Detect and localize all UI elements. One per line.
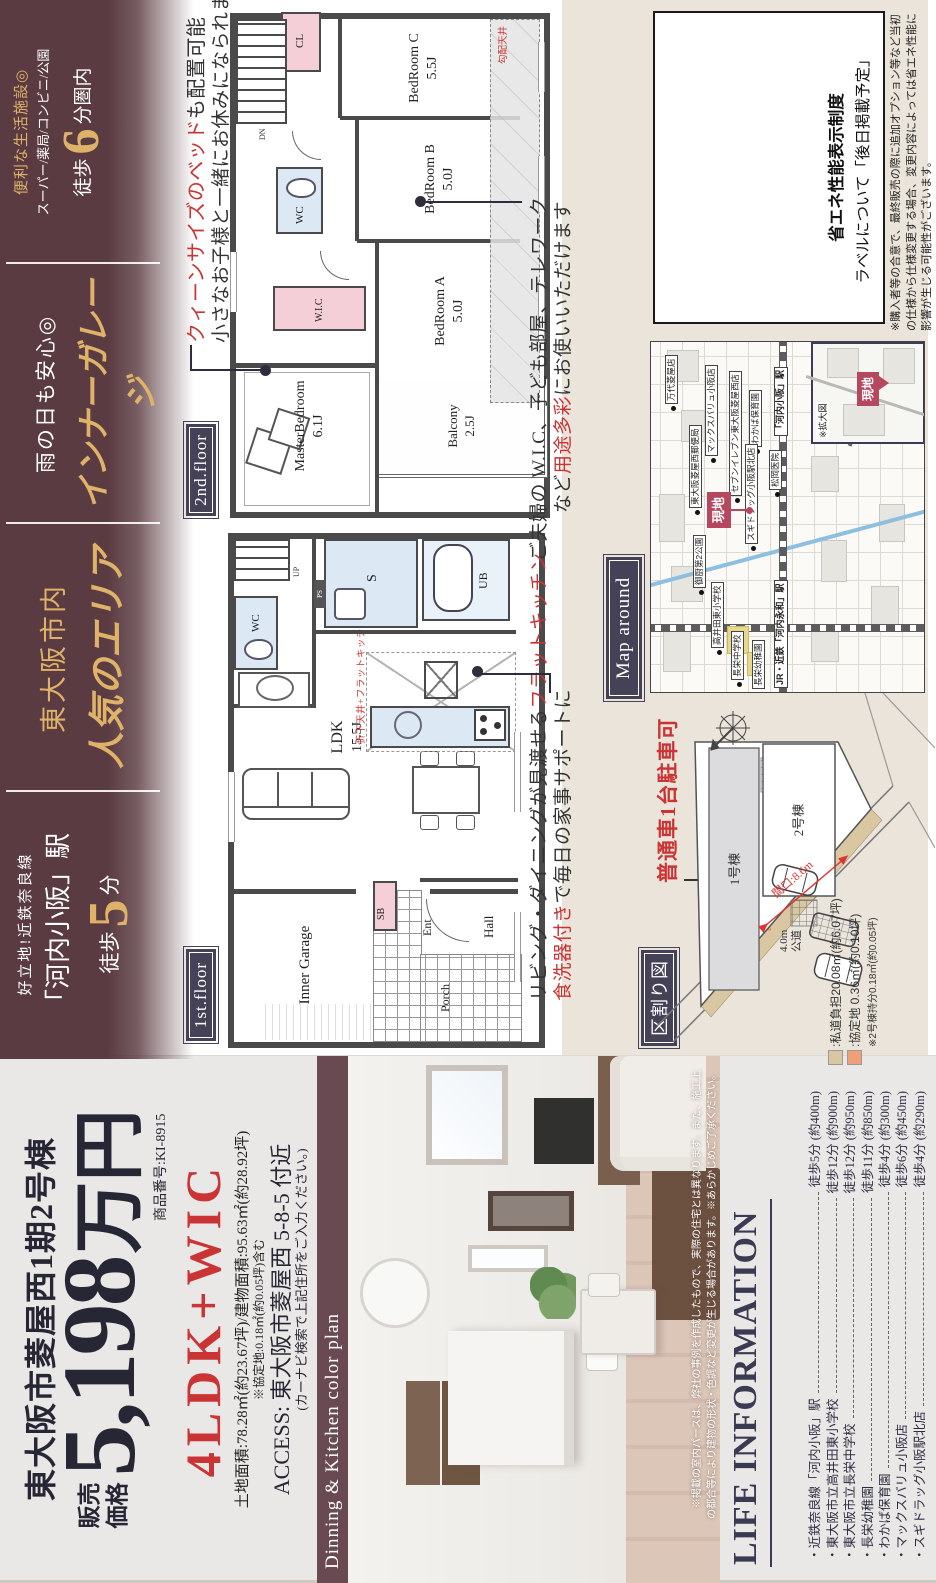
map-inset: ※拡大図 現地 xyxy=(811,342,925,444)
poi-label: わかば保育園 xyxy=(750,393,760,444)
wic-annotation-line1: ご夫婦の W.I.C、子ども部屋、テレワーク xyxy=(524,201,551,561)
master-size: 6.1J xyxy=(310,376,328,476)
stairs-down xyxy=(236,19,287,124)
legend-swatch-orange xyxy=(847,1050,862,1065)
bed-leader-dot xyxy=(260,365,271,376)
poi-label: セブンイレブン東大阪菱屋西店 xyxy=(730,374,740,493)
interior-photo: ※掲載の室内パースは、弊社の事例を作成したもので、実際の住宅とは異なります。また… xyxy=(348,1056,720,1583)
wic-leader-dot xyxy=(415,196,426,207)
queen-bed-red: クィーンサイズのベッド xyxy=(186,119,208,343)
bedB-size: 5.0J xyxy=(440,124,458,234)
station-walk-unit: 分 xyxy=(98,875,122,896)
life-item: ・近鉄奈良線「河内小阪」駅徒歩5分 (約400m) xyxy=(806,1091,823,1561)
entry-label: Ent xyxy=(420,919,436,936)
life-item: ・マックスバリュ小阪店徒歩6分 (約450m) xyxy=(893,1091,910,1561)
wic-ann-red: 用途多彩 xyxy=(553,396,574,474)
second-floor-label: 2nd.floor xyxy=(186,424,216,516)
building-1-label: 1号棟 xyxy=(727,853,742,886)
stairs-up-label: UP xyxy=(292,567,301,577)
band-section-garage: 雨の日も安心◎ インナーガレージ xyxy=(0,264,163,524)
photo-disclaimer-1: ※掲載の室内パースは、弊社の事例を作成したもので、実際の住宅とは異なります。また… xyxy=(688,1070,703,1508)
land-building-area: 土地面積:78.28㎡(約23.67坪)/建物面積:95.63㎡(約28.92坪… xyxy=(231,1056,252,1583)
flyer-viewport: 好立地!近鉄奈良線 「河内小阪」駅 徒歩 5 分 東大阪市内 人気のエリア 雨の… xyxy=(0,0,936,1583)
closet: CL xyxy=(281,12,321,72)
dishwasher-red: 食洗器付き xyxy=(553,903,574,1001)
ceiling-light xyxy=(360,1258,430,1328)
bed-annotation-line1: クィーンサイズのベッドも配置可能 xyxy=(180,17,209,343)
life-item: ・わかば保育園徒歩4分 (約300m) xyxy=(876,1091,893,1561)
site-marker: 現地 xyxy=(707,492,731,528)
bedroom-c-label: BedRoom C 5.5J xyxy=(406,20,442,116)
band-section-facility: 便利な生活施設◎ スーパー/薬局/コンビニ/公園 徒歩 6 分圏内 xyxy=(0,0,111,264)
kitchen-annotation-tail: で毎日の家事サポートに xyxy=(553,689,574,904)
life-item-name: ・わかば保育園 xyxy=(874,1473,893,1561)
leader-dashes xyxy=(836,1198,837,1393)
bedroom-a-label: BedRoom A 5.0J xyxy=(432,256,468,366)
wc-label: WC xyxy=(249,614,263,632)
life-item-time: 徒歩4分 (約290m) xyxy=(909,1091,928,1187)
bed-leader-line xyxy=(190,369,264,371)
bathroom: UB xyxy=(422,539,510,621)
life-item-name: ・東大阪市立高井田東小学校 xyxy=(822,1398,841,1561)
kitchen-leader-dot xyxy=(472,666,483,677)
inset-label: ※拡大図 xyxy=(816,402,829,439)
chair-symbol xyxy=(456,751,475,766)
bed-annotation-black: も配置可能 xyxy=(186,17,208,120)
catch-copy-band: 好立地!近鉄奈良線 「河内小阪」駅 徒歩 5 分 東大阪市内 人気のエリア 雨の… xyxy=(0,0,198,1059)
life-item-name: ・スギドラッグ小阪駅北店 xyxy=(909,1411,928,1561)
chair-symbol xyxy=(456,815,475,830)
facility-line1: 便利な生活施設◎ xyxy=(10,0,31,264)
life-item: ・長栄幼稚園徒歩11分 (約850m) xyxy=(858,1091,875,1561)
leader-dashes xyxy=(905,1192,906,1419)
legend-agreement-text: :協定地 0.36㎡(約0.10坪) xyxy=(846,914,863,1047)
kitchen-upper-cabinet xyxy=(406,1381,440,1485)
storage-room: S xyxy=(324,539,418,628)
second-floor-label-text: 2nd.floor xyxy=(191,434,211,506)
storage-label: S xyxy=(364,574,382,582)
band-section-area: 東大阪市内 人気のエリア xyxy=(0,524,131,792)
inset-site-marker-text: 現地 xyxy=(861,377,875,401)
tv-screen xyxy=(534,1098,594,1164)
closet-label: CL xyxy=(293,34,307,48)
balcony-size: 2.5J xyxy=(462,388,479,464)
ps-label: PS xyxy=(316,590,324,598)
kitchen-leader-line xyxy=(549,673,551,693)
legend-note: ※2号棟持分0.18㎡(約0.05坪) xyxy=(864,835,879,1065)
area-line1: 東大阪市内 xyxy=(32,524,71,792)
energy-note: ※購入者等の合意で、最終販売の際に追加オプション等など当初の仕様から仕様変更する… xyxy=(889,5,936,331)
master-bedroom-label: MasterBedroom 6.1J xyxy=(292,376,328,476)
life-item: ・スギドラッグ小阪駅北店徒歩4分 (約290m) xyxy=(910,1091,927,1561)
second-floor-plan: MasterBedroom 6.1J Balcony 2.5J W.I.C WC… xyxy=(230,13,550,518)
station-catch: 好立地!近鉄奈良線 xyxy=(14,795,35,1053)
price-label-1: 販売 xyxy=(76,1483,104,1529)
poi-label: 長栄幼稚園 xyxy=(753,643,763,686)
wic-ann-post: にお使いいただけます xyxy=(553,201,574,396)
price-label-2: 価格 xyxy=(104,1483,132,1529)
skylight xyxy=(426,1065,508,1165)
wc-room: WC xyxy=(234,596,278,670)
garage-line1: 雨の日も安心◎ xyxy=(30,264,60,524)
life-item: ・東大阪市立長栄中学校徒歩12分 (約950m) xyxy=(841,1091,858,1561)
facility-walk-unit: 分圏内 xyxy=(73,67,94,124)
framed-picture xyxy=(488,1191,574,1231)
ldk-name: LDK xyxy=(328,700,349,774)
station-walk-minutes: 5 xyxy=(78,900,140,928)
door-arc xyxy=(320,251,349,280)
kitchen-island xyxy=(448,1331,574,1465)
life-item-name: ・近鉄奈良線「河内小阪」駅 xyxy=(804,1398,823,1561)
kitchen-note: 折下天井+フラットキッチン xyxy=(353,618,367,744)
site-marker-dot xyxy=(746,507,753,514)
station-name: 「河内小阪」駅 xyxy=(38,795,75,1053)
ps-box: PS xyxy=(314,580,326,608)
life-item-time: 徒歩5分 (約400m) xyxy=(804,1091,823,1187)
life-information-header: LIFE INFORMATION xyxy=(727,1199,772,1567)
station-kosaka-text: 「河内小阪」駅 xyxy=(775,370,785,433)
map-around-text: Map around xyxy=(613,577,635,679)
walk-in-closet: W.I.C xyxy=(273,286,366,331)
station-walk-label: 徒歩 xyxy=(98,932,122,974)
road-type-label: 公道 xyxy=(789,930,803,952)
flyer-page: 好立地!近鉄奈良線 「河内小阪」駅 徒歩 5 分 東大阪市内 人気のエリア 雨の… xyxy=(0,0,936,1583)
building-2-label: 2号棟 xyxy=(791,804,806,837)
wc-2f-label: WC xyxy=(293,206,307,224)
life-item: ・東大阪市立高井田東小学校徒歩12分 (約900m) xyxy=(823,1091,840,1561)
master-name: MasterBedroom xyxy=(292,376,310,476)
wc-room-2f: WC xyxy=(276,167,323,234)
floor-plan-type: 4LDK+WIC xyxy=(174,1056,232,1583)
porch-tiles xyxy=(420,954,522,1042)
bed-annotation-line2: 小さなお子様と一緒にお休みになられます xyxy=(206,0,233,343)
leader-dashes xyxy=(871,1198,872,1481)
door-arc xyxy=(292,131,321,160)
photo-disclaimer-2: の都合等により建物の形状・色調など変更が生じる場合があります。※あらかじめご了承… xyxy=(703,1070,718,1519)
stairs-down-label: DN xyxy=(258,128,267,140)
station-label-kosaka: 「河内小阪」駅 xyxy=(774,367,788,436)
wic-annotation-line2: など用途多彩にお使いいただけます xyxy=(548,201,575,561)
area-line2: 人気のエリア xyxy=(77,524,131,792)
kitchen-leader-line xyxy=(481,673,551,675)
photo-banner: Dinning & Kitchen color plan xyxy=(317,1056,348,1583)
site-plan-drawing: 1号棟 2号棟 間口:8.6m 4.0m 公道 xyxy=(645,693,935,1048)
road-width-label: 4.0m xyxy=(778,929,790,952)
poi-label: 長栄中学校 xyxy=(732,634,742,677)
life-item-time: 徒歩4分 (約300m) xyxy=(874,1091,893,1187)
kitchen-annotation-line1: リビング・ダイニングが見渡せるフラットキッチン xyxy=(524,695,551,1001)
product-number: 商品番号:KI-8915 xyxy=(150,1114,170,1221)
bedA-size: 5.0J xyxy=(450,256,468,366)
sloped-ceiling-note: 勾配天井 xyxy=(495,26,509,64)
first-floor-plan: Inner Garage Porch SB Ent Hall LDK 15.5J xyxy=(228,533,545,1048)
shoe-box xyxy=(373,881,397,931)
price-unit: 万円 xyxy=(74,1110,146,1254)
dining-table xyxy=(580,1289,656,1355)
kitchen-annotation-line2: 食洗器付きで毎日の家事サポートに xyxy=(548,695,575,1001)
bedB-name: BedRoom B xyxy=(422,124,440,234)
legend-swatch-tan xyxy=(828,1050,843,1065)
hall-label: Hall xyxy=(481,916,498,938)
porch-label: Porch xyxy=(438,984,454,1012)
kitchen-annotation-black: リビング・ダイニングが見渡せる xyxy=(529,708,550,1001)
shoe-box-label: SB xyxy=(375,908,388,920)
facility-walk-minutes: 6 xyxy=(53,129,110,155)
poi-label: スギドラッグ小阪駅北店 xyxy=(746,447,756,541)
energy-label-box: 省エネ性能表示制度 ラベルについて「後日掲載予定」 xyxy=(653,11,885,324)
station-label-eiwa: JR・近鉄「河内永和」駅 xyxy=(774,580,788,688)
life-item-time: 徒歩12分 (約950m) xyxy=(839,1091,858,1193)
area-map: 万代菱屋店 マックスバリュ小阪店 セブンイレブン東大阪菱屋西店 わかば保育園 東… xyxy=(650,341,925,693)
kitchen-counter xyxy=(370,706,510,748)
facility-line2: スーパー/薬局/コンビニ/公園 xyxy=(33,0,52,264)
site-marker-text: 現地 xyxy=(711,497,726,523)
band-section-station: 好立地!近鉄奈良線 「河内小阪」駅 徒歩 5 分 xyxy=(0,795,141,1053)
access-note: (カーナビ検索で上記住所をご入力ください。) xyxy=(291,1016,310,1543)
first-floor-label-text: 1st.floor xyxy=(191,962,211,1028)
site-legend: :私道負担20.08㎡(約6.07坪) :協定地 0.36㎡(約0.10坪) ※… xyxy=(826,835,879,1065)
leader-dashes xyxy=(853,1198,854,1418)
life-item-time: 徒歩11分 (約850m) xyxy=(857,1091,876,1193)
life-item-time: 徒歩6分 (約450m) xyxy=(891,1091,910,1187)
garage-line2: インナーガレージ xyxy=(67,264,163,524)
bed-leader-line xyxy=(190,345,192,371)
energy-line2: ラベルについて「後日掲載予定」 xyxy=(851,13,873,322)
poi-label: マックスバリュ小阪店 xyxy=(706,368,716,453)
map-around-label: Map around xyxy=(606,557,642,699)
leader-dashes xyxy=(818,1192,819,1393)
life-item-name: ・マックスバリュ小阪店 xyxy=(891,1424,910,1561)
price-amount: 5,198 xyxy=(52,1258,148,1477)
bedC-size: 5.5J xyxy=(424,20,442,116)
leader-dashes xyxy=(888,1192,889,1468)
poi-label: 松岡医院 xyxy=(770,453,780,487)
chair-symbol xyxy=(420,751,439,766)
plant-leaves xyxy=(530,1267,576,1319)
inset-site-marker: 現地 xyxy=(857,372,879,406)
photo-banner-label: Dinning & Kitchen color plan xyxy=(322,1313,343,1569)
bath-label: UB xyxy=(476,572,492,589)
price-row: 販売 価格 5,198 万円 xyxy=(52,1069,148,1569)
bedA-name: BedRoom A xyxy=(432,256,450,366)
legend-row-agreement: :協定地 0.36㎡(約0.10坪) xyxy=(845,835,864,1065)
kitchen-annotation-red: フラットキッチン xyxy=(529,552,550,708)
poi-label: 東大阪菱屋西郵便局 xyxy=(690,428,700,505)
station-eiwa-text: JR・近鉄「河内永和」駅 xyxy=(775,583,785,685)
dining-chair xyxy=(588,1273,620,1297)
bedroom-b-label: BedRoom B 5.0J xyxy=(422,124,458,234)
jr-railway xyxy=(651,624,925,632)
energy-line1: 省エネ性能表示制度 xyxy=(823,13,847,322)
life-item-time: 徒歩12分 (約900m) xyxy=(822,1091,841,1193)
inset-marker-pointer xyxy=(879,376,889,390)
vanity xyxy=(238,672,310,708)
leader-dashes xyxy=(923,1192,924,1406)
life-item-name: ・東大阪市立長栄中学校 xyxy=(839,1423,858,1561)
wic-leader-line xyxy=(426,201,522,203)
legend-private-road-text: :私道負担20.08㎡(約6.07坪) xyxy=(827,898,844,1047)
dining-table-symbol xyxy=(412,766,480,814)
first-floor-label: 1st.floor xyxy=(186,949,216,1041)
sofa-symbol xyxy=(242,768,350,820)
wic-label: W.I.C xyxy=(313,298,326,322)
legend-row-private-road: :私道負担20.08㎡(約6.07坪) xyxy=(826,835,845,1065)
facility-walk-label: 徒歩 xyxy=(73,159,94,197)
balcony-name: Balcony xyxy=(445,388,462,464)
poi-label: 高井田東小学校 xyxy=(712,585,722,645)
life-item-name: ・長栄幼稚園 xyxy=(857,1486,876,1561)
stairs-up xyxy=(234,539,290,581)
balcony-label: Balcony 2.5J xyxy=(445,388,479,464)
poi-label: 万代菱屋店 xyxy=(666,358,676,401)
bedC-name: BedRoom C xyxy=(406,20,424,116)
life-information-list: ・近鉄奈良線「河内小阪」駅徒歩5分 (約400m) ・東大阪市立高井田東小学校徒… xyxy=(806,1091,928,1561)
site-marker-stem xyxy=(731,509,747,511)
wic-ann-pre: など xyxy=(553,474,574,513)
pantry-box xyxy=(424,661,458,699)
poi-label: 御厨第2公園 xyxy=(694,538,704,585)
chair-symbol xyxy=(420,815,439,830)
